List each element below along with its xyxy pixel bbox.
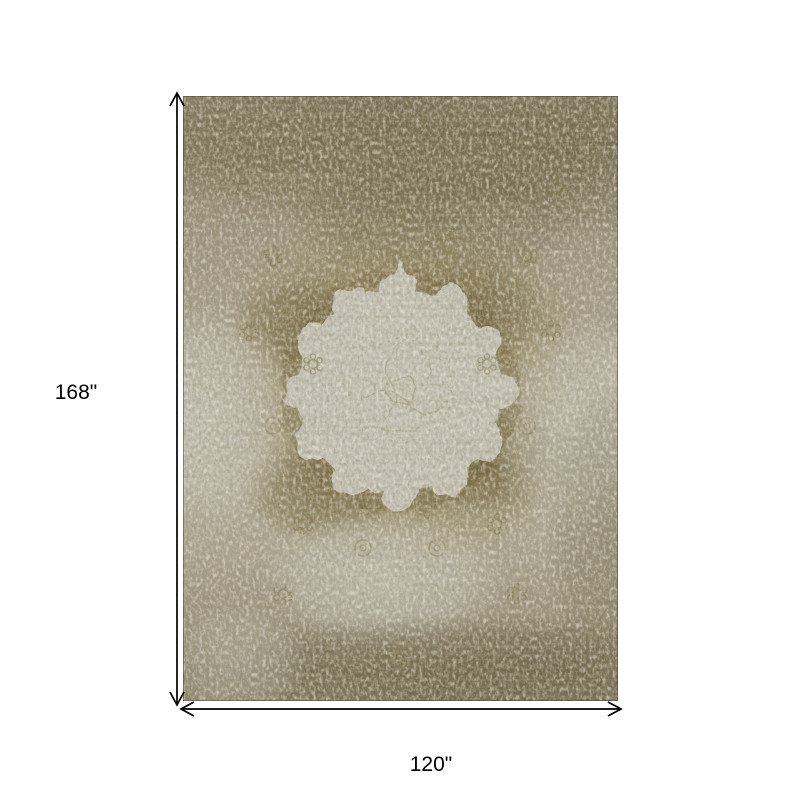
- rug-art: [183, 96, 618, 701]
- rug-texture-overlays: [183, 96, 618, 701]
- width-dimension-label: 120": [371, 754, 491, 776]
- product-dimension-diagram: 168" 120": [0, 0, 800, 800]
- height-dimension-arrow: [168, 90, 188, 708]
- rug-product-image: [183, 96, 618, 701]
- width-dimension-arrow: [178, 700, 624, 720]
- height-dimension-label: 168": [36, 382, 116, 404]
